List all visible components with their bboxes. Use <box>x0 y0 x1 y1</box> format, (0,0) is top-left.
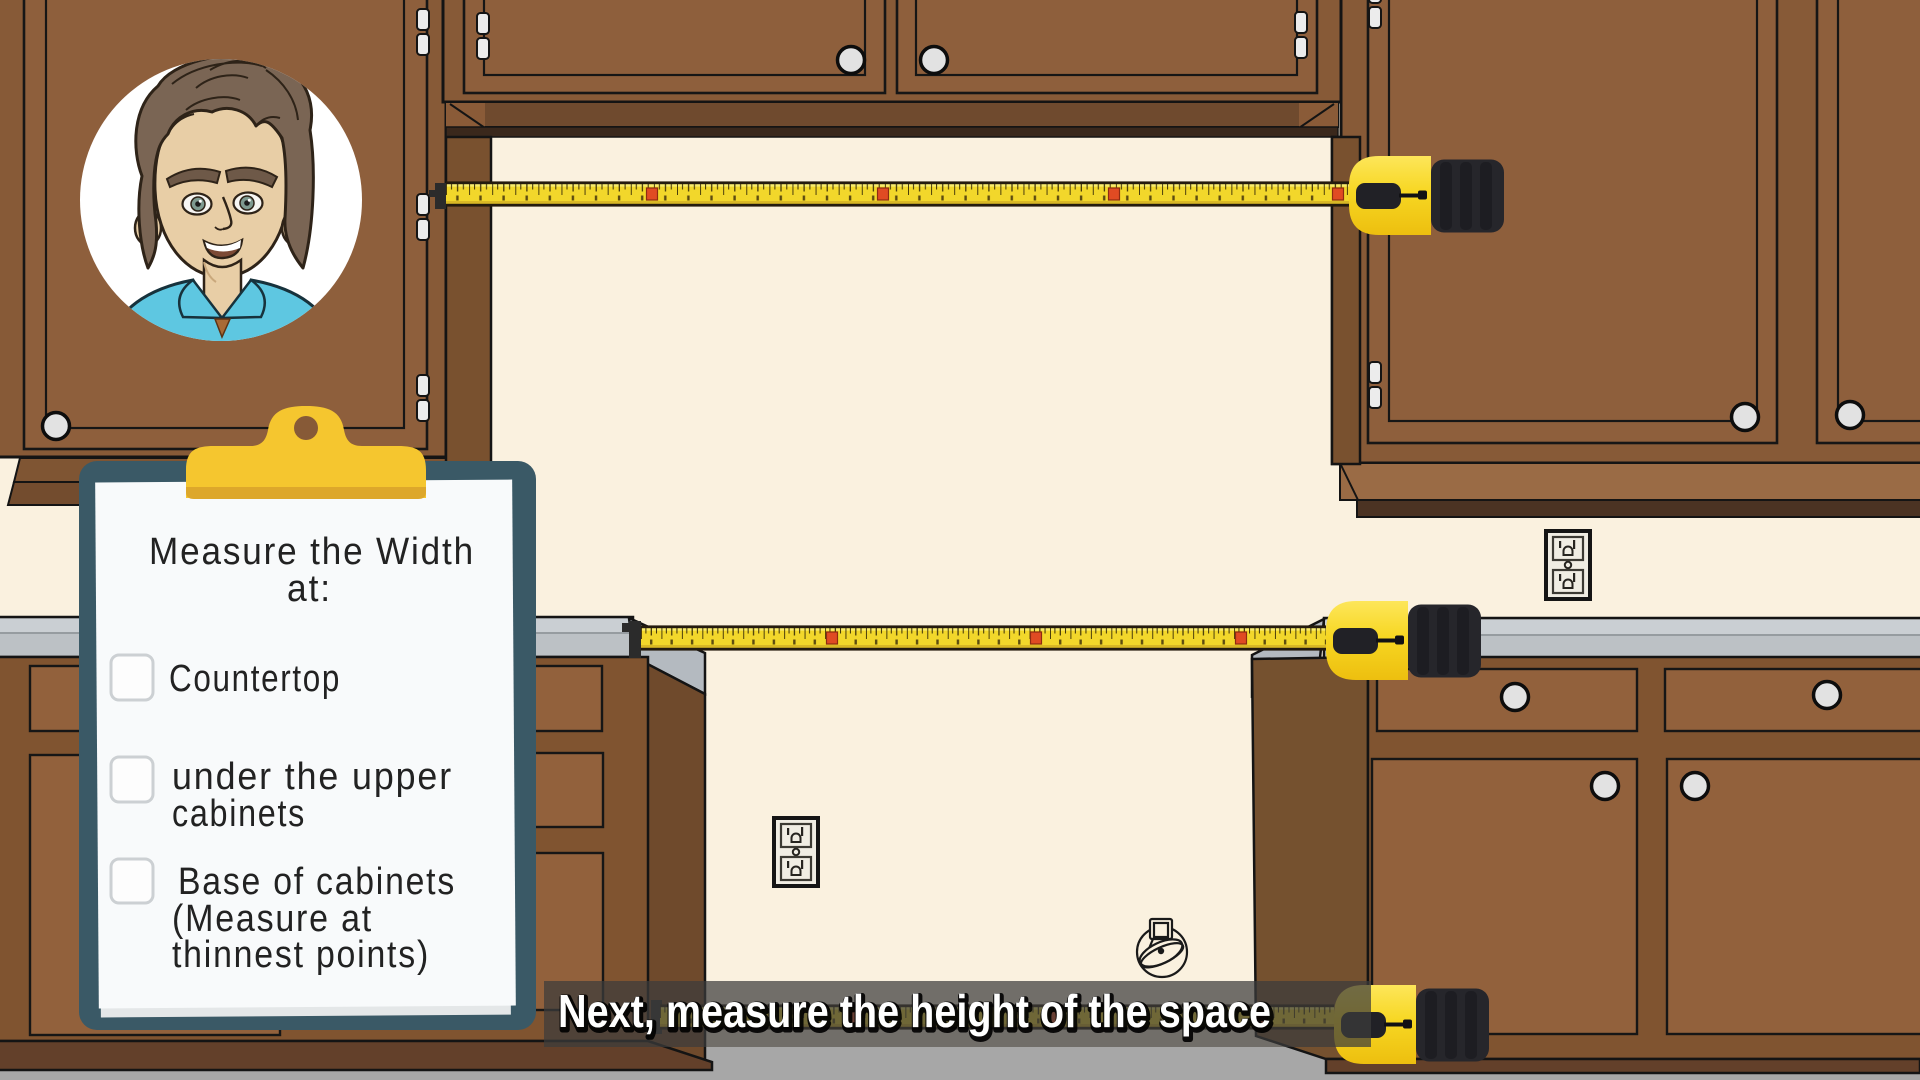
svg-text:Base of cabinets: Base of cabinets <box>178 861 456 903</box>
svg-text:cabinets: cabinets <box>172 793 306 835</box>
svg-text:Next, measure the height of th: Next, measure the height of the space <box>558 985 1271 1037</box>
svg-text:thinnest points): thinnest points) <box>172 934 430 976</box>
svg-text:Countertop: Countertop <box>169 658 341 700</box>
svg-text:under the upper: under the upper <box>172 756 453 798</box>
svg-text:at:: at: <box>287 568 332 610</box>
svg-text:Measure the Width: Measure the Width <box>149 531 475 573</box>
